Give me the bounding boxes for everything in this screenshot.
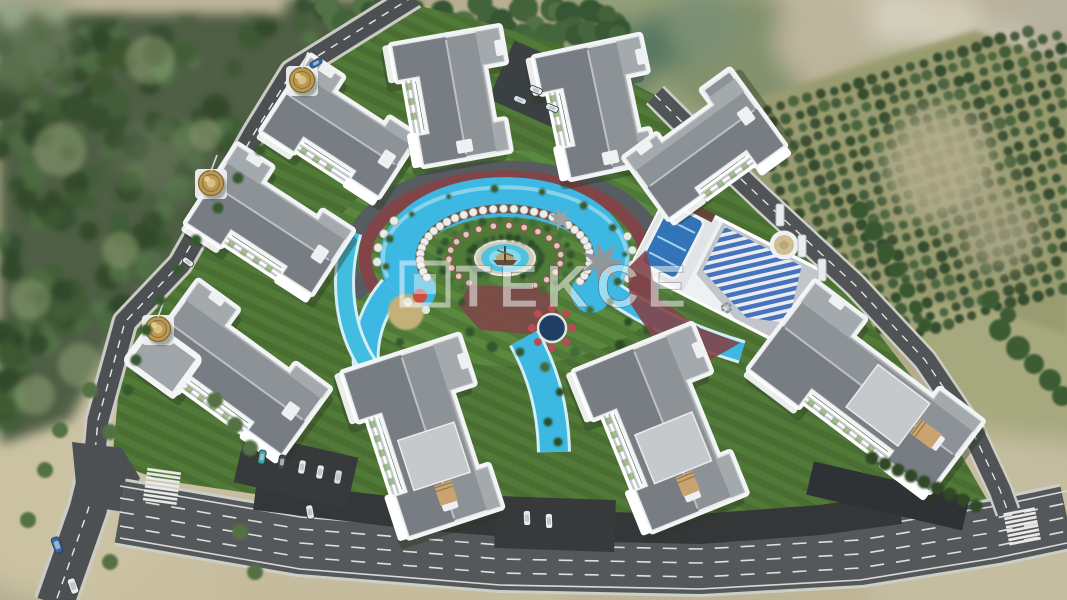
svg-text:TEKCE: TEKCE [455,253,693,320]
